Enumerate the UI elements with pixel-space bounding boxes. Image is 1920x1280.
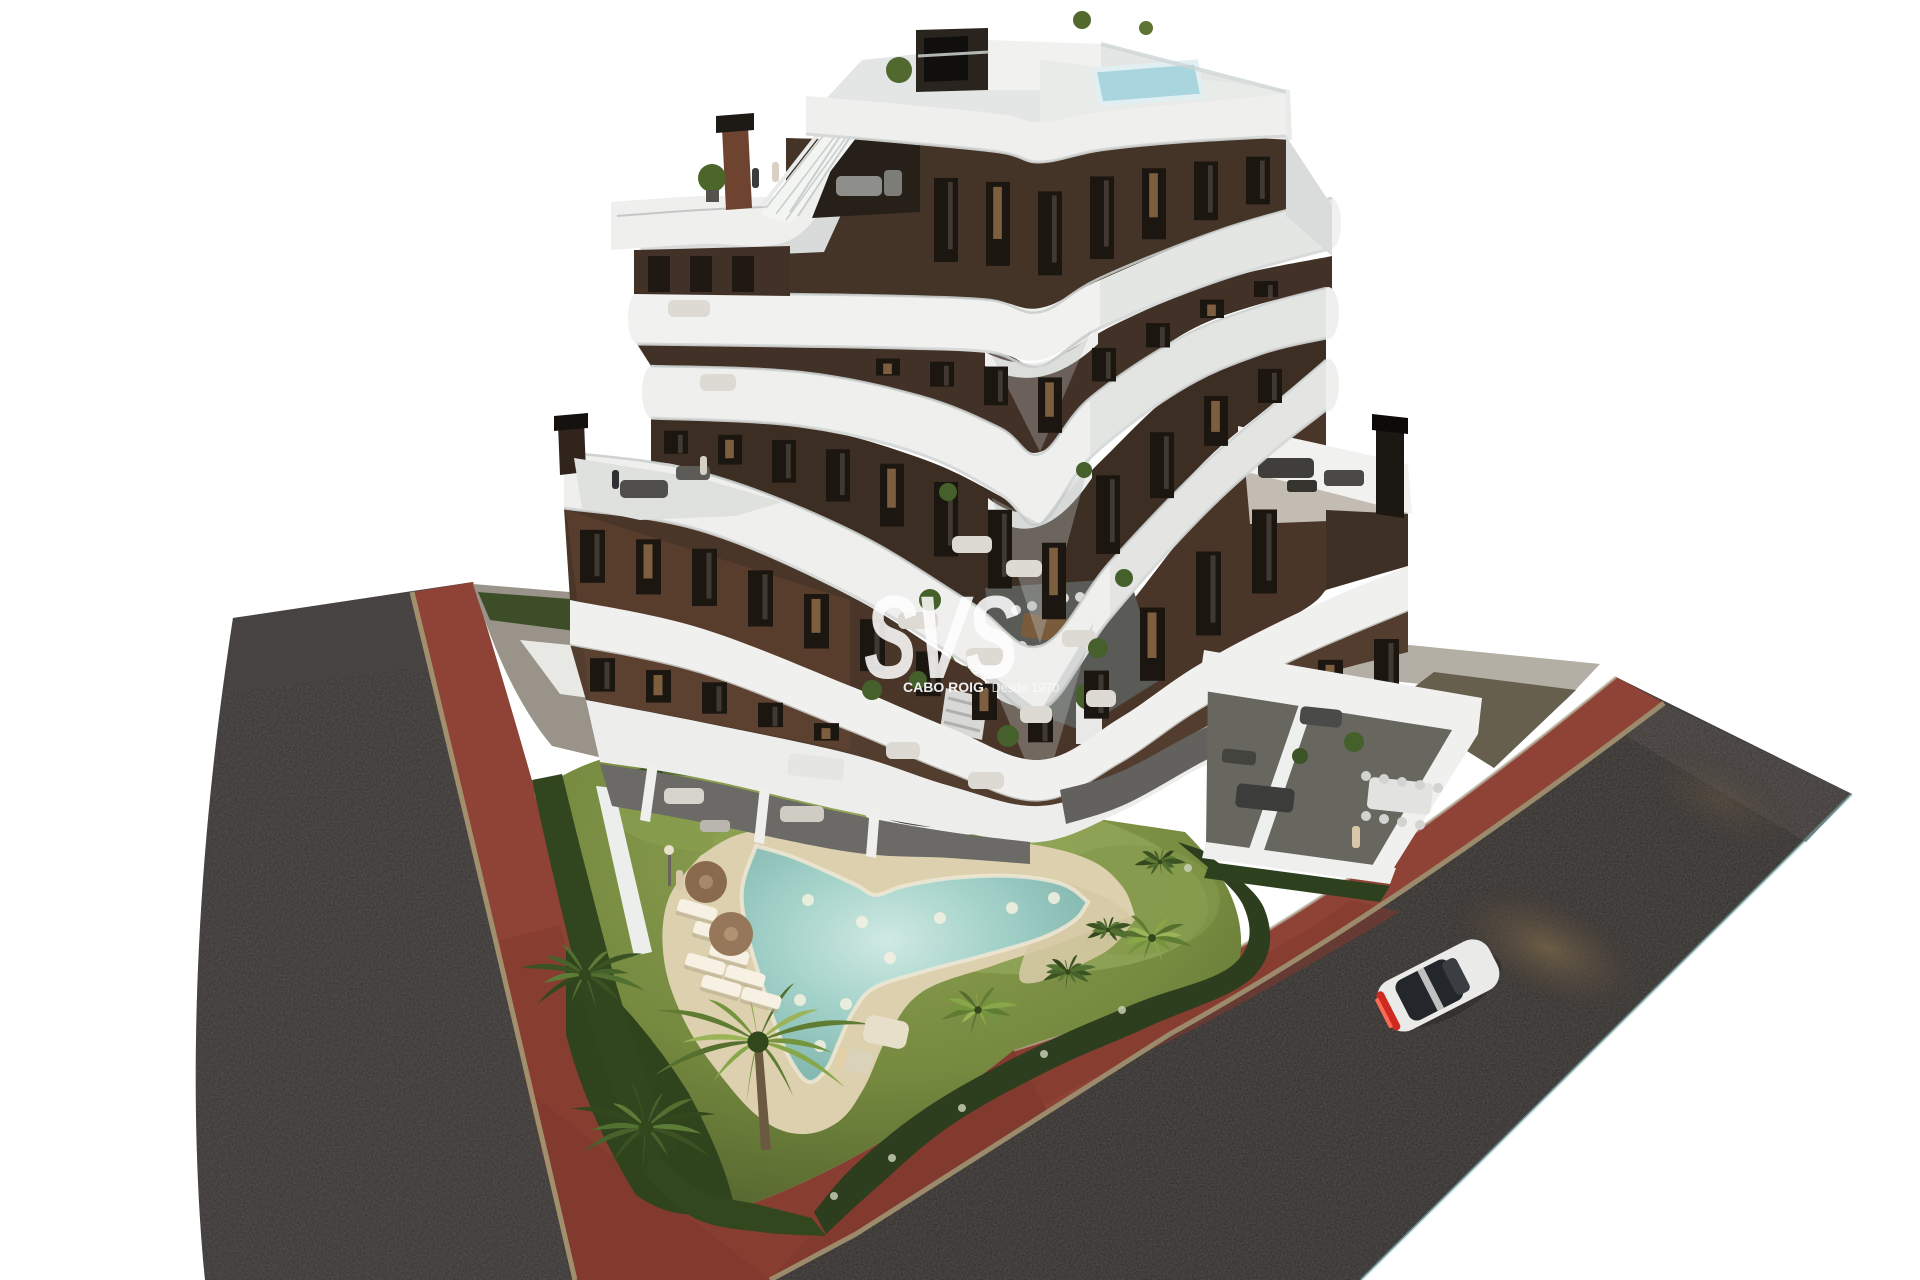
- svg-text:· Desde 1970: · Desde 1970: [984, 681, 1059, 695]
- svg-text:CABO ROIG: CABO ROIG: [903, 679, 984, 695]
